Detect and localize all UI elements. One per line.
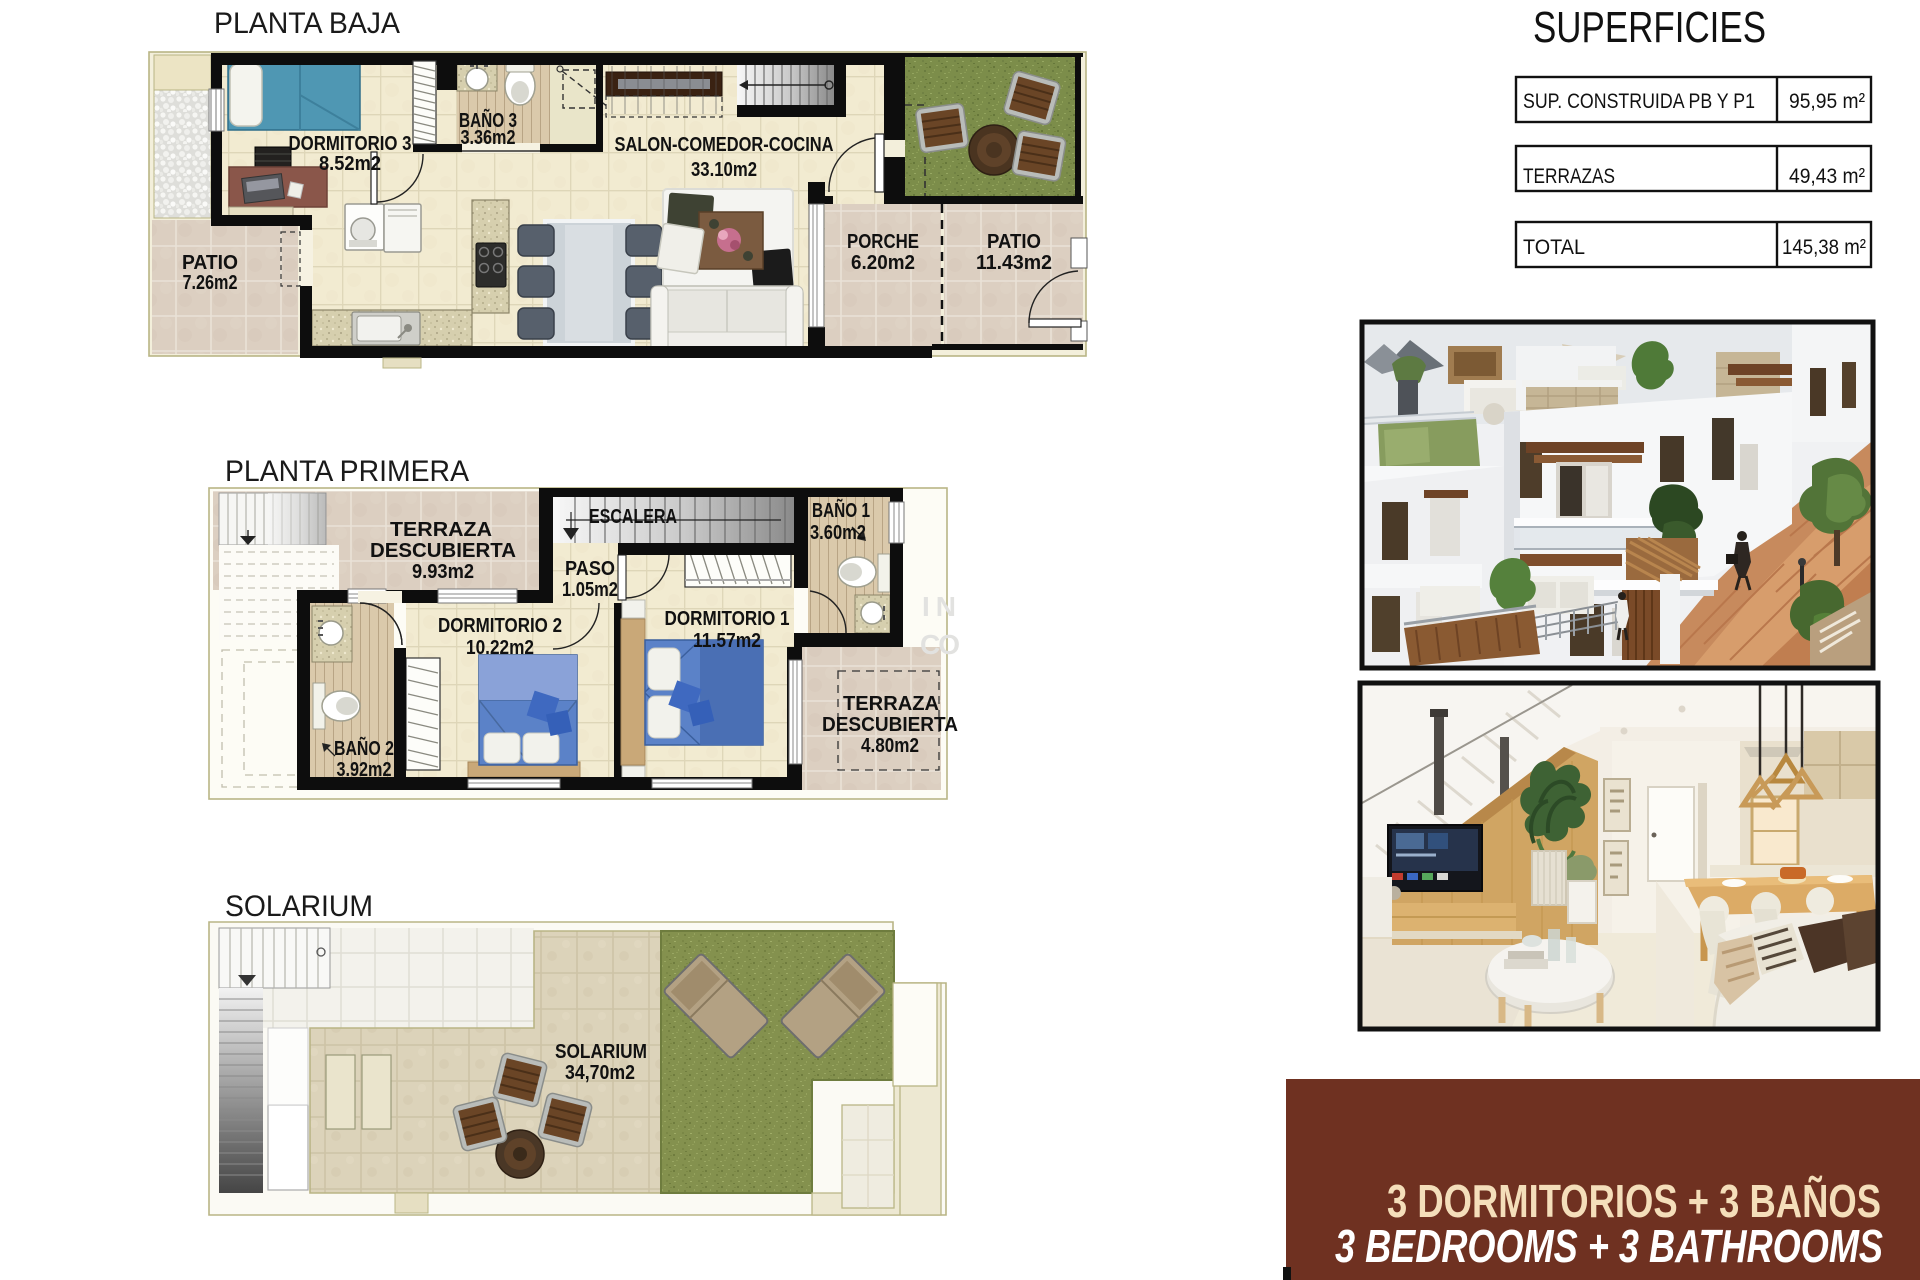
svg-text:TERRAZA: TERRAZA xyxy=(843,693,939,715)
svg-text:95,95 m²: 95,95 m² xyxy=(1789,90,1865,113)
svg-text:DESCUBIERTA: DESCUBIERTA xyxy=(822,714,958,736)
svg-text:BAÑO 2: BAÑO 2 xyxy=(334,737,394,760)
svg-text:11.57m2: 11.57m2 xyxy=(693,630,761,652)
svg-text:ESCALERA: ESCALERA xyxy=(589,506,677,528)
svg-text:11.43m2: 11.43m2 xyxy=(976,252,1052,274)
svg-text:PATIO: PATIO xyxy=(987,231,1041,253)
svg-text:IN: IN xyxy=(922,591,956,622)
svg-text:TERRAZA: TERRAZA xyxy=(390,519,492,541)
svg-text:3.60m2: 3.60m2 xyxy=(810,522,866,544)
svg-text:3.92m2: 3.92m2 xyxy=(337,759,392,781)
svg-text:TOTAL: TOTAL xyxy=(1523,236,1585,259)
svg-text:PORCHE: PORCHE xyxy=(847,231,919,253)
svg-text:SALON-COMEDOR-COCINA: SALON-COMEDOR-COCINA xyxy=(615,134,834,156)
svg-text:PLANTA BAJA: PLANTA BAJA xyxy=(214,7,400,40)
svg-text:DORMITORIO 3: DORMITORIO 3 xyxy=(289,133,412,155)
svg-text:7.26m2: 7.26m2 xyxy=(183,272,238,294)
svg-text:1.05m2: 1.05m2 xyxy=(562,579,618,601)
svg-text:33.10m2: 33.10m2 xyxy=(691,159,757,181)
svg-text:DESCUBIERTA: DESCUBIERTA xyxy=(370,540,516,562)
svg-text:4.80m2: 4.80m2 xyxy=(861,735,919,757)
svg-text:DORMITORIO 2: DORMITORIO 2 xyxy=(438,615,562,637)
svg-text:PASO: PASO xyxy=(565,558,615,580)
svg-text:SOLARIUM: SOLARIUM xyxy=(555,1041,647,1063)
svg-text:34,70m2: 34,70m2 xyxy=(565,1062,635,1084)
svg-text:DORMITORIO 1: DORMITORIO 1 xyxy=(665,608,790,630)
svg-text:SOLARIUM: SOLARIUM xyxy=(225,890,373,923)
svg-text:BAÑO 1: BAÑO 1 xyxy=(812,499,870,522)
svg-text:49,43 m²: 49,43 m² xyxy=(1789,165,1865,188)
svg-text:145,38 m²: 145,38 m² xyxy=(1782,236,1866,259)
svg-text:8.52m2: 8.52m2 xyxy=(319,153,381,175)
svg-text:3.36m2: 3.36m2 xyxy=(461,127,516,149)
svg-text:PATIO: PATIO xyxy=(182,252,238,274)
svg-text:SUP. CONSTRUIDA PB Y P1: SUP. CONSTRUIDA PB Y P1 xyxy=(1523,90,1755,113)
svg-text:10.22m2: 10.22m2 xyxy=(466,637,534,659)
svg-text:3 BEDROOMS + 3 BATHROOMS: 3 BEDROOMS + 3 BATHROOMS xyxy=(1335,1220,1883,1272)
svg-text:PLANTA PRIMERA: PLANTA PRIMERA xyxy=(225,455,469,488)
svg-text:TERRAZAS: TERRAZAS xyxy=(1523,165,1615,188)
svg-text:CO: CO xyxy=(920,629,960,660)
svg-text:9.93m2: 9.93m2 xyxy=(412,561,474,583)
svg-text:6.20m2: 6.20m2 xyxy=(851,252,915,274)
svg-text:SUPERFICIES: SUPERFICIES xyxy=(1533,3,1766,52)
